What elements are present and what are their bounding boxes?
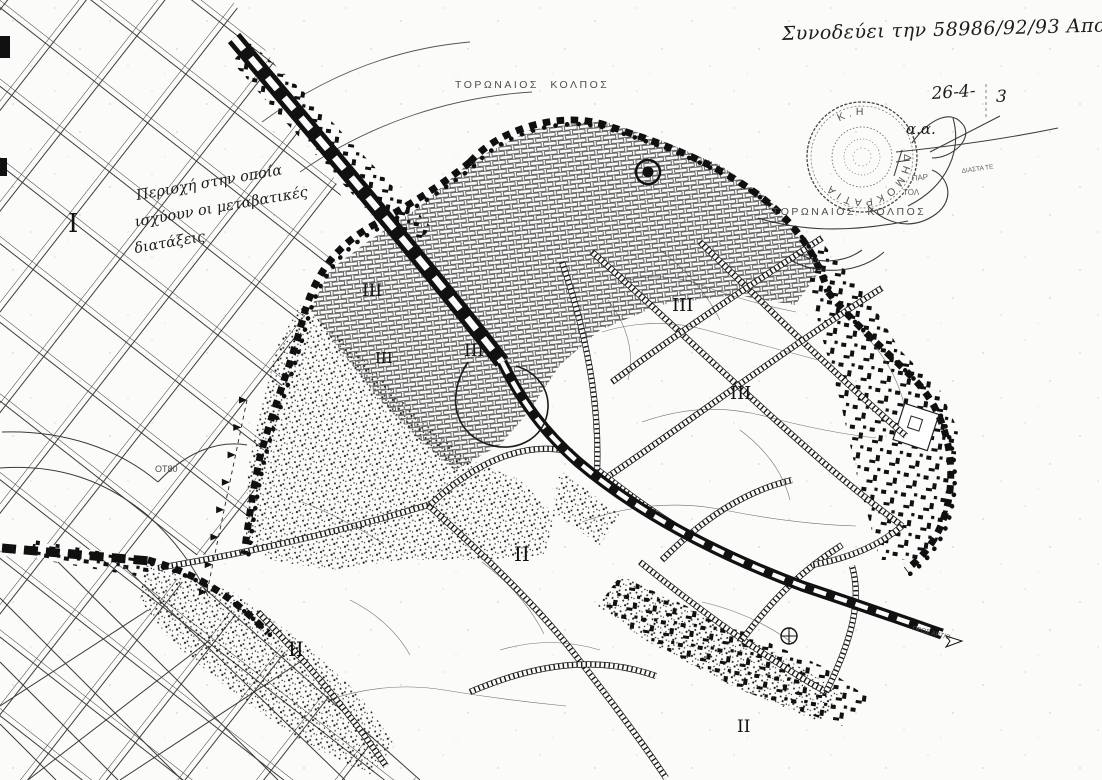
zone-label: III bbox=[672, 295, 693, 316]
gulf-label-right: ΤΟΡΩΝΑΙΟΣ ΚΟΛΠΟΣ bbox=[772, 206, 926, 218]
stamp-fragment: ΤΟΛ bbox=[903, 188, 920, 197]
block-label: ΟΤ80 bbox=[155, 464, 178, 474]
zone-label: III bbox=[375, 349, 393, 367]
zone-label: II bbox=[737, 717, 750, 737]
zone-label: II bbox=[288, 637, 304, 661]
zone-label: III bbox=[464, 341, 484, 361]
date-suffix: 3 bbox=[996, 87, 1007, 107]
date-note: 26-4- bbox=[930, 81, 976, 104]
zone-label: III bbox=[362, 281, 382, 301]
zone-label: I bbox=[68, 209, 78, 239]
zone-label: II bbox=[514, 542, 530, 566]
scanned-map-page: ΤΟΡΩΝΑΙΟΣ ΚΟΛΠΟΣ ΤΟΡΩΝΑΙΟΣ ΚΟΛΠΟΣ ΟΤ80 Π… bbox=[0, 0, 1102, 780]
stamp-fragment: ΠΑΡ bbox=[911, 172, 928, 183]
zone-label: III bbox=[730, 383, 751, 404]
town-plan-map: ΤΟΡΩΝΑΙΟΣ ΚΟΛΠΟΣ ΤΟΡΩΝΑΙΟΣ ΚΟΛΠΟΣ ΟΤ80 Π… bbox=[0, 0, 1102, 780]
gulf-label-top: ΤΟΡΩΝΑΙΟΣ ΚΟΛΠΟΣ bbox=[455, 79, 609, 91]
